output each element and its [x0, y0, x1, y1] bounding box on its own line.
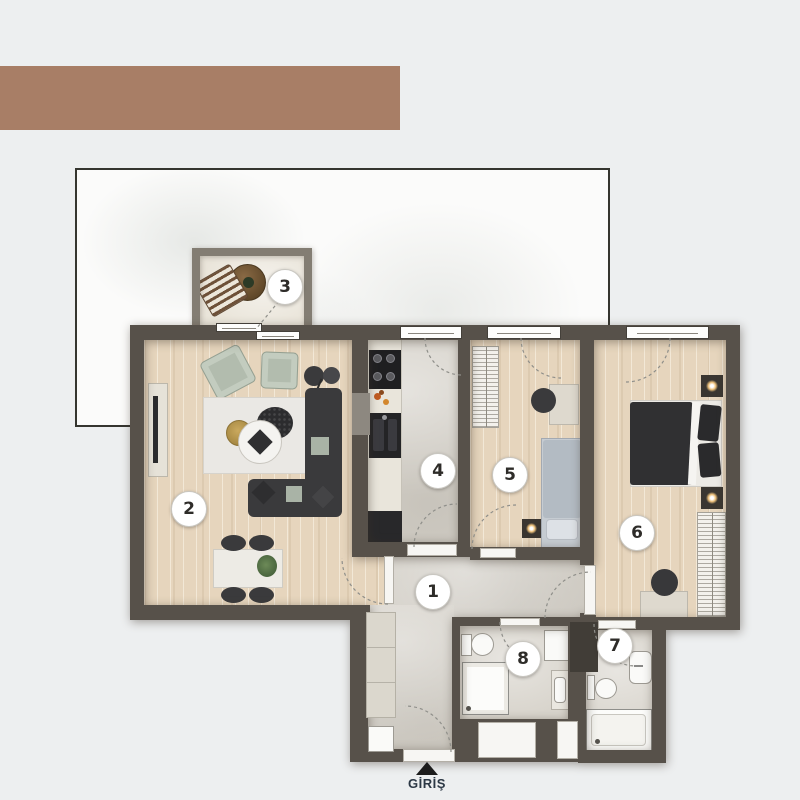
- entrance-label: GİRİŞ: [387, 776, 467, 791]
- entrance-arrow-icon: [416, 762, 438, 775]
- service-niche-2: [557, 721, 578, 759]
- room-number: 6: [631, 523, 643, 543]
- room-label-1-hall: 1: [415, 574, 451, 610]
- room-number: 4: [432, 461, 444, 481]
- bathroom8-door-sill: [500, 618, 540, 626]
- room-label-4-kitchen: 4: [420, 453, 456, 489]
- room-label-7-bathroom: 7: [597, 628, 633, 664]
- duct-shaft: [570, 622, 598, 672]
- room-label-5-bedroom: 5: [492, 457, 528, 493]
- living-hall-door-sill: [384, 556, 394, 604]
- room-number: 5: [504, 465, 516, 485]
- balcony-sliding-door-2: [256, 331, 300, 340]
- room-label-8-bathroom: 8: [505, 641, 541, 677]
- bedroom5-window: [487, 326, 561, 339]
- room-label-6-bedroom: 6: [619, 515, 655, 551]
- hall-closet: [366, 612, 396, 718]
- room-label-3-balcony: 3: [267, 269, 303, 305]
- entrance-door-sill: [403, 749, 455, 762]
- room-number: 2: [183, 499, 195, 519]
- shoe-cabinet: [368, 726, 394, 752]
- floor-plan-page: 1 2 3 4 5 6 7 8 GİRİŞ: [0, 0, 800, 800]
- wall-niche: [352, 393, 370, 435]
- room-number: 3: [279, 277, 291, 297]
- kitchen-window: [400, 326, 462, 339]
- room-number: 7: [609, 636, 621, 656]
- apartment-walls: [0, 0, 800, 800]
- room-number: 8: [517, 649, 529, 669]
- bedroom5-door-sill: [480, 548, 516, 558]
- bedroom6-window: [626, 326, 709, 339]
- service-niche-1: [478, 722, 536, 758]
- room-label-2-living: 2: [171, 491, 207, 527]
- bedroom6-door-sill: [584, 565, 596, 615]
- kitchen-door-sill: [407, 544, 457, 556]
- room-number: 1: [427, 582, 439, 602]
